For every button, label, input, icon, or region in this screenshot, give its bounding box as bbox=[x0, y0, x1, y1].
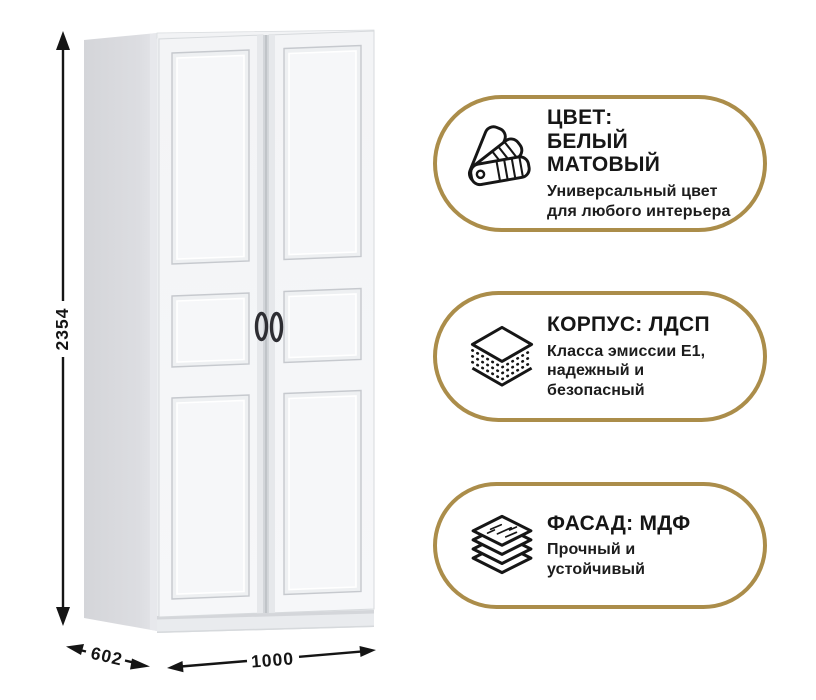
width-dimension-label: 1000 bbox=[250, 648, 294, 671]
badge-body-text: КОРПУС: ЛДСП Класса эмиссии Е1, надежный… bbox=[547, 313, 745, 400]
feature-badges: ЦВЕТ: БЕЛЫЙ МАТОВЫЙ Универсальный цвет д… bbox=[433, 0, 767, 700]
width-arrow-right bbox=[360, 646, 377, 657]
depth-arrow-back bbox=[66, 644, 84, 655]
depth-dimension-label: 602 bbox=[89, 643, 125, 670]
badge-color-title-line1: ЦВЕТ: bbox=[547, 106, 741, 130]
badge-color-title-line2: БЕЛЫЙ МАТОВЫЙ bbox=[547, 130, 741, 177]
height-arrow-down bbox=[56, 607, 70, 626]
badge-color-title: ЦВЕТ: БЕЛЫЙ МАТОВЫЙ bbox=[547, 106, 741, 177]
product-infographic: 2354 602 1000 bbox=[0, 0, 816, 700]
wardrobe-drawing: 2354 602 1000 bbox=[0, 0, 420, 700]
side-panel-front-edge bbox=[150, 33, 157, 631]
depth-arrow-front bbox=[130, 659, 150, 670]
badge-body-title: КОРПУС: ЛДСП bbox=[547, 313, 741, 337]
badge-facade-desc: Прочный и устойчивый bbox=[547, 540, 741, 579]
layered-board-icon bbox=[457, 317, 547, 397]
height-arrow-up bbox=[56, 31, 70, 50]
badge-body-desc: Класса эмиссии Е1, надежный и безопасный bbox=[547, 342, 741, 401]
wardrobe-illustration: 2354 602 1000 bbox=[0, 0, 420, 700]
badge-facade-title: ФАСАД: МДФ bbox=[547, 512, 741, 536]
width-arrow-left bbox=[167, 661, 184, 672]
wardrobe-side-panel bbox=[84, 33, 157, 631]
stacked-sheets-icon bbox=[457, 506, 547, 586]
badge-color-desc: Универсальный цвет для любого интерьера bbox=[547, 182, 741, 221]
badge-color-text: ЦВЕТ: БЕЛЫЙ МАТОВЫЙ Универсальный цвет д… bbox=[547, 106, 745, 221]
color-swatches-icon bbox=[457, 118, 547, 210]
badge-body-material: КОРПУС: ЛДСП Класса эмиссии Е1, надежный… bbox=[433, 291, 767, 422]
height-dimension-label: 2354 bbox=[52, 308, 72, 351]
wardrobe-left-door bbox=[159, 35, 263, 617]
badge-facade-material: ФАСАД: МДФ Прочный и устойчивый bbox=[433, 482, 767, 609]
badge-color: ЦВЕТ: БЕЛЫЙ МАТОВЫЙ Универсальный цвет д… bbox=[433, 95, 767, 232]
wardrobe-right-door bbox=[269, 31, 374, 613]
badge-facade-text: ФАСАД: МДФ Прочный и устойчивый bbox=[547, 512, 745, 580]
